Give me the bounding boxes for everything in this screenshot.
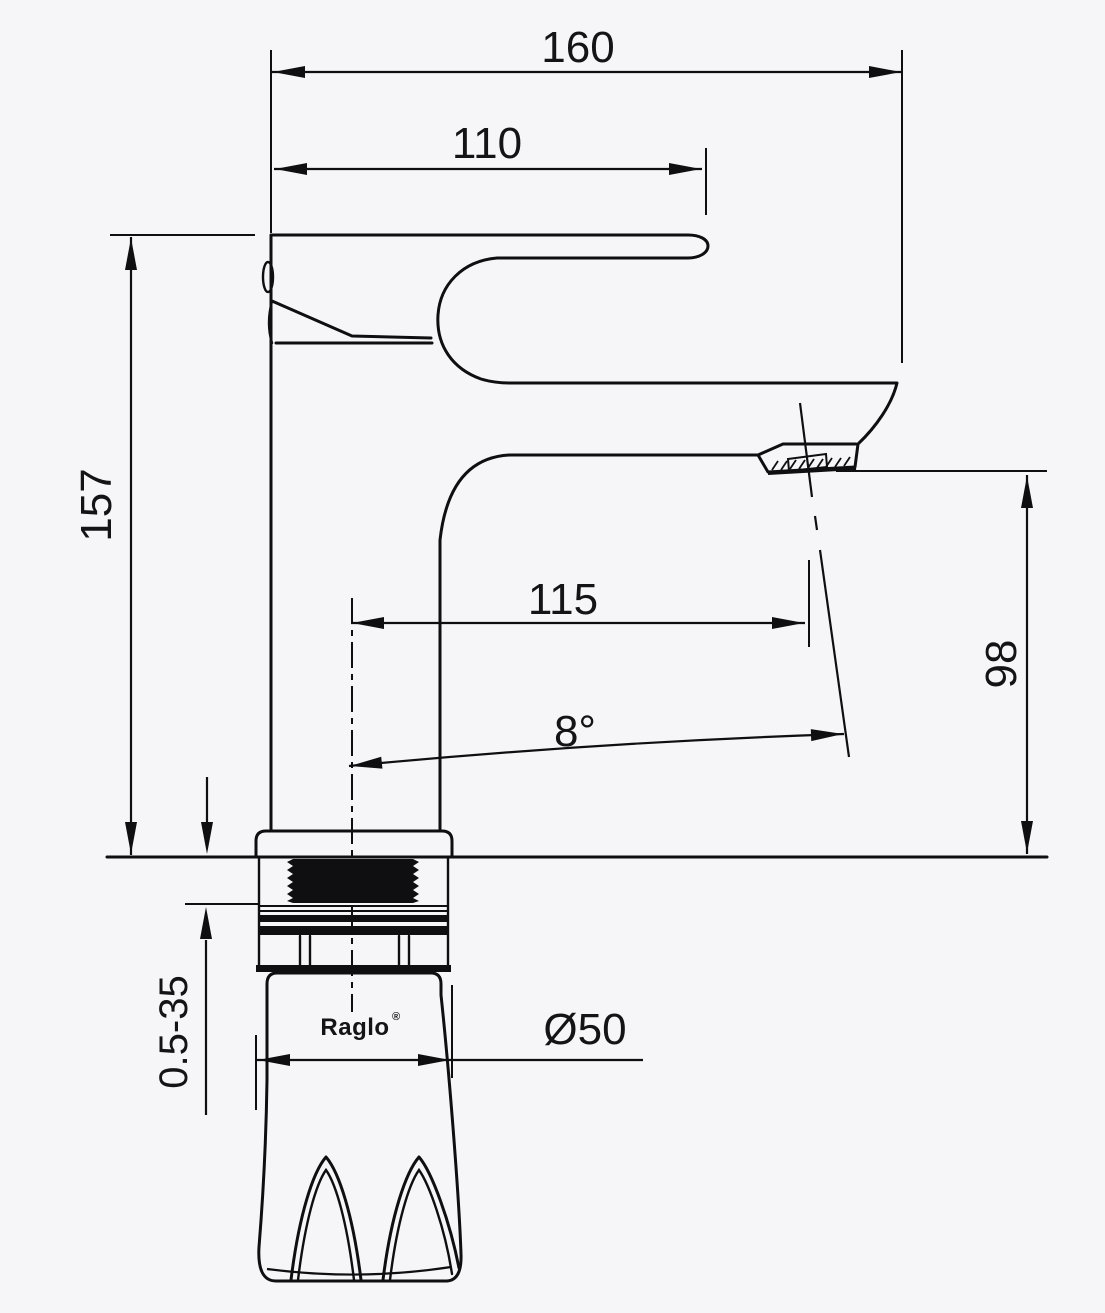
brand-logo: Raglo ® (320, 1011, 400, 1041)
brand-name-label: Raglo (320, 1014, 389, 1041)
dim-outlet-height: 98 (836, 471, 1047, 854)
dim-deck-thickness-label: 0.5-35 (152, 975, 196, 1088)
dim-base-diameter-label: Ø50 (543, 1005, 626, 1054)
dim-spout-reach: 115 (351, 560, 809, 647)
base-escutcheon (256, 831, 452, 857)
locknut-bottom (256, 965, 451, 972)
faucet-technical-drawing: 160 110 157 115 8° 98 (0, 0, 1105, 1313)
lever-bottom-edge (272, 301, 431, 338)
dim-total-height: 157 (72, 235, 255, 855)
dim-deck-thickness: 0.5-35 (152, 777, 258, 1115)
technical-drawing-sheet: 160 110 157 115 8° 98 (0, 0, 1105, 1313)
dim-spout-angle-label: 8° (554, 707, 596, 756)
dim-spout-reach-label: 115 (528, 575, 598, 624)
dim-outlet-height-label: 98 (977, 640, 1026, 689)
registered-trademark-icon: ® (392, 1011, 400, 1023)
dim-handle-length: 110 (274, 119, 706, 215)
dim-overall-length: 160 (271, 23, 902, 363)
dim-spout-angle: 8° (349, 707, 844, 772)
threaded-shank (287, 859, 419, 903)
dim-overall-length-label: 160 (541, 23, 614, 72)
dim-handle-length-label: 110 (452, 119, 522, 168)
dim-total-height-label: 157 (72, 468, 121, 541)
hose-arches (291, 1157, 459, 1280)
